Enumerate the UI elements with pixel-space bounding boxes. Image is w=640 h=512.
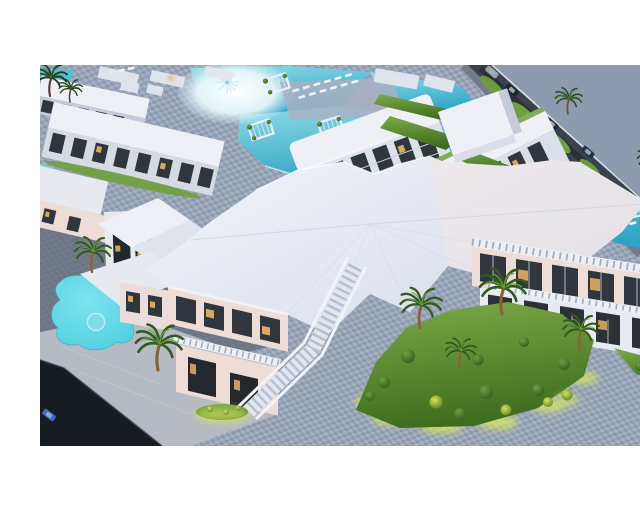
resort-aerial-render <box>40 16 640 496</box>
letterbox-top <box>40 16 640 65</box>
spa-pool <box>88 314 105 331</box>
letterbox-bottom <box>40 446 640 496</box>
path-lamp <box>169 76 174 81</box>
